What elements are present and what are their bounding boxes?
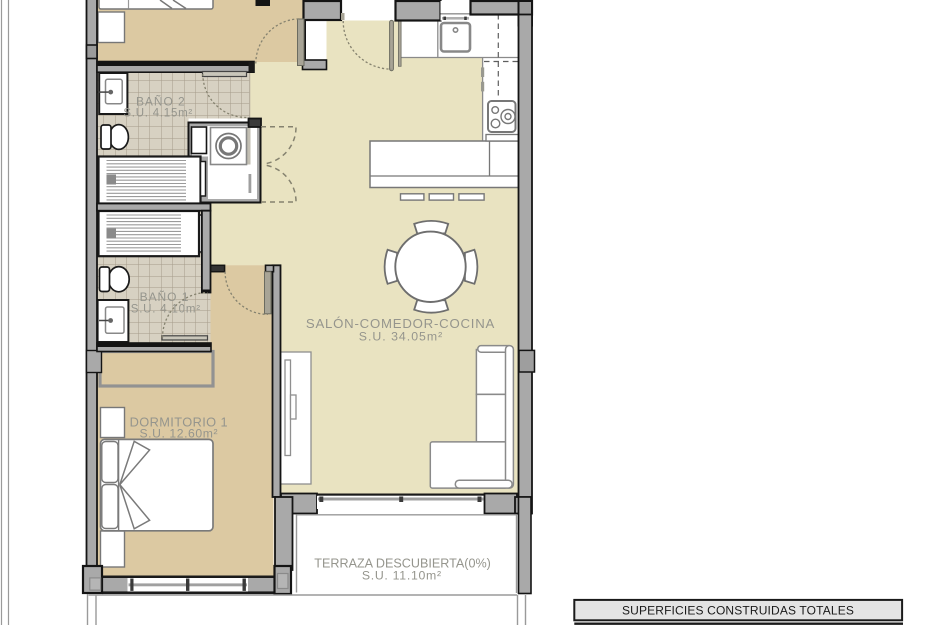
svg-text:BAÑO 1: BAÑO 1 bbox=[140, 290, 190, 304]
svg-text:S.U. 11.10m²: S.U. 11.10m² bbox=[362, 569, 442, 583]
svg-text:S.U. 4.10m²: S.U. 4.10m² bbox=[131, 304, 201, 316]
svg-text:S.U. 34.05m²: S.U. 34.05m² bbox=[359, 330, 443, 344]
svg-text:BAÑO 2: BAÑO 2 bbox=[136, 95, 186, 109]
svg-text:S.U. 4.15m²: S.U. 4.15m² bbox=[123, 108, 193, 120]
svg-text:S.U. 12.60m²: S.U. 12.60m² bbox=[139, 427, 218, 441]
svg-text:SUPERFICIES CONSTRUIDAS TOTALE: SUPERFICIES CONSTRUIDAS TOTALES bbox=[622, 604, 854, 618]
